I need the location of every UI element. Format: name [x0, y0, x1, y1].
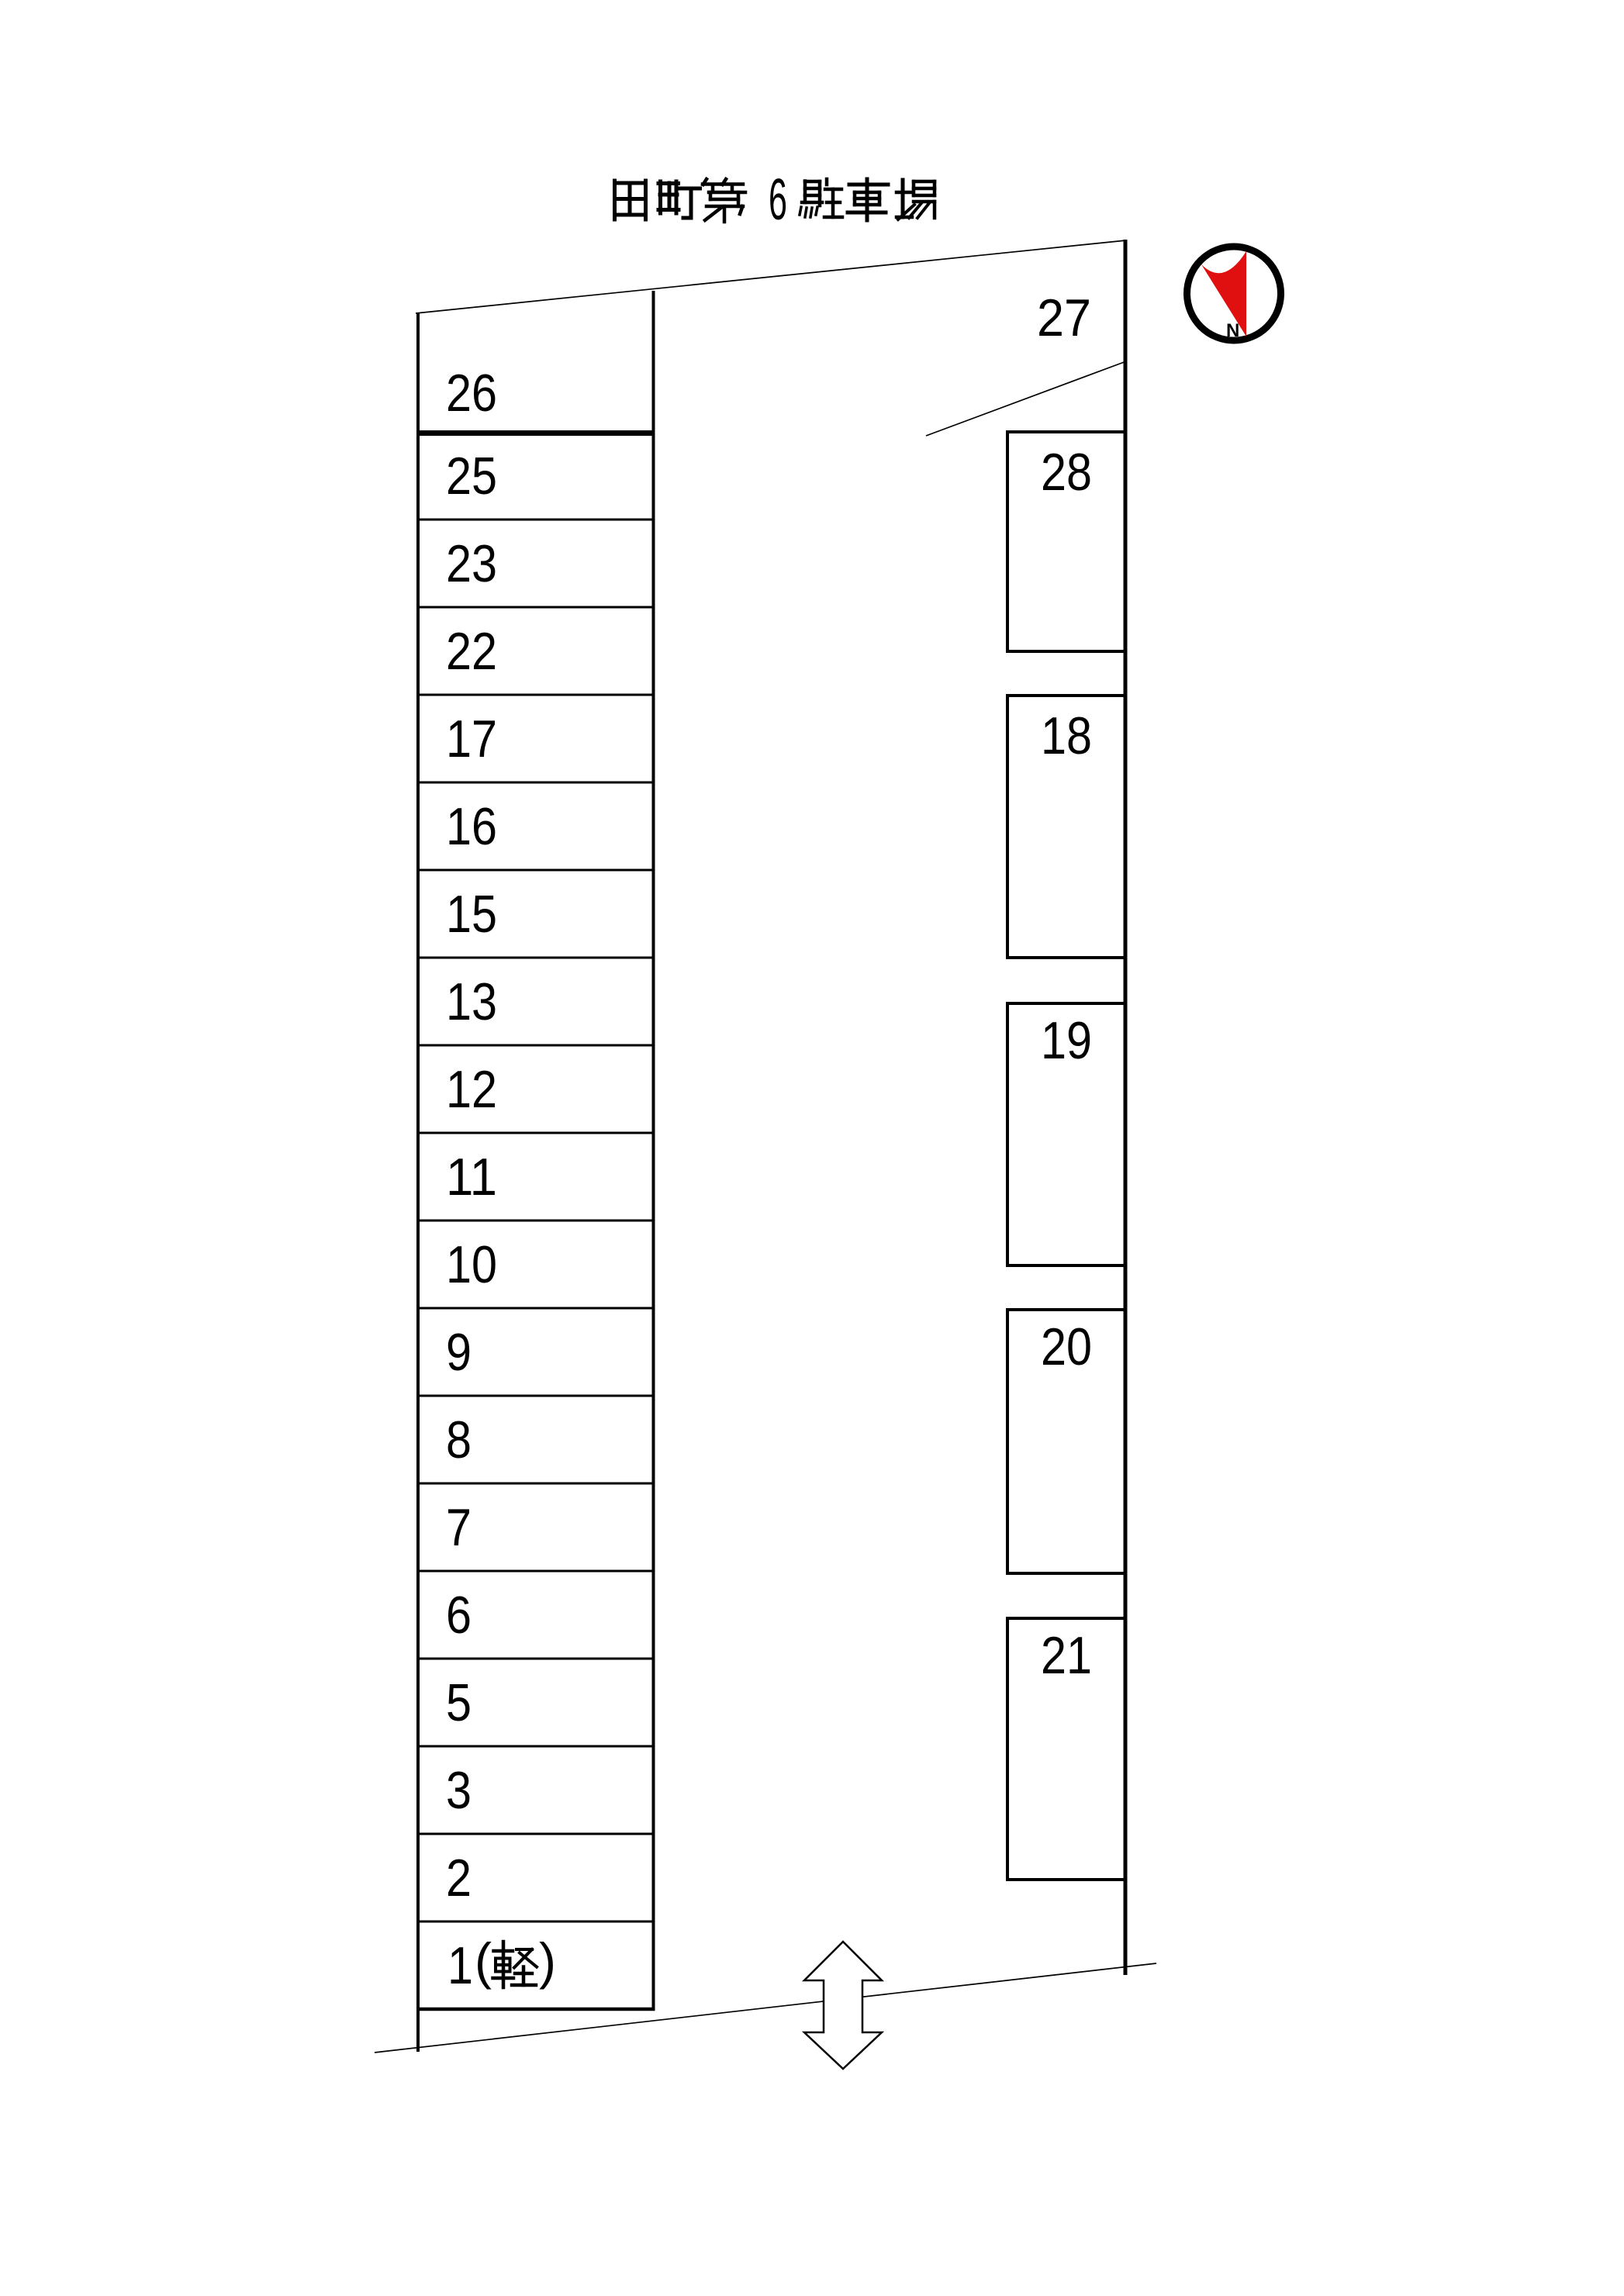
svg-text:9: 9 [446, 1323, 472, 1382]
svg-text:25: 25 [446, 447, 497, 506]
svg-text:27: 27 [1037, 288, 1091, 347]
svg-text:5: 5 [446, 1673, 472, 1732]
svg-text:7: 7 [446, 1498, 472, 1557]
svg-text:12: 12 [446, 1060, 497, 1119]
svg-text:1: 1 [447, 1936, 473, 1995]
svg-text:13: 13 [446, 972, 497, 1031]
svg-text:N: N [1226, 320, 1239, 341]
svg-text:21: 21 [1041, 1626, 1092, 1685]
svg-text:23: 23 [446, 534, 497, 593]
svg-text:3: 3 [446, 1761, 472, 1820]
svg-text:2: 2 [446, 1849, 472, 1908]
svg-text:19: 19 [1041, 1011, 1092, 1070]
svg-text:(: ( [475, 1932, 492, 1990]
svg-text:20: 20 [1041, 1317, 1092, 1376]
svg-text:16: 16 [446, 797, 497, 856]
svg-text:6: 6 [446, 1586, 472, 1645]
svg-text:11: 11 [446, 1148, 497, 1207]
svg-text:10: 10 [446, 1235, 497, 1294]
svg-text:26: 26 [446, 364, 497, 423]
svg-text:15: 15 [446, 885, 497, 944]
svg-text:): ) [539, 1932, 556, 1990]
svg-text:28: 28 [1041, 443, 1092, 502]
svg-text:22: 22 [446, 622, 497, 681]
svg-text:18: 18 [1041, 706, 1092, 765]
svg-text:6: 6 [769, 167, 787, 232]
svg-text:8: 8 [446, 1410, 472, 1469]
svg-text:17: 17 [446, 710, 497, 768]
